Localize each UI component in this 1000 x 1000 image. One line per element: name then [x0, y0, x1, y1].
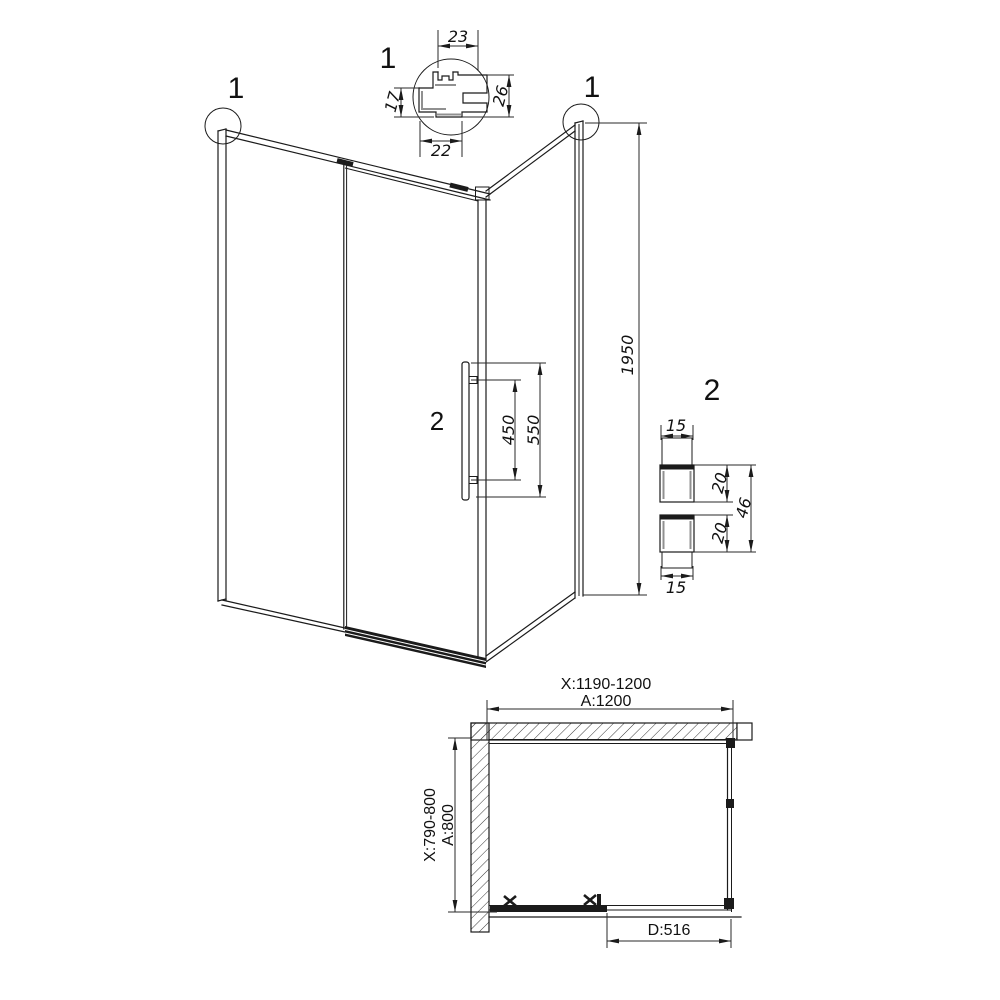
- handle-dimensions: 450 550: [471, 363, 546, 497]
- detail2-lower-depth-dim: 20: [708, 521, 732, 546]
- callout-label-right: 1: [584, 71, 601, 104]
- panel-clamp-bottom: [724, 898, 734, 909]
- handle-hole-spacing-dim: 450: [499, 415, 518, 446]
- callout-label-left: 1: [228, 72, 245, 105]
- corner-post: [476, 187, 490, 662]
- top-wall: [471, 723, 737, 740]
- plan-door-dimension: D:516: [607, 913, 731, 948]
- plan-door-opening: D:516: [648, 922, 691, 939]
- plan-depth-range: X:790-800: [422, 788, 439, 862]
- detail2-label: 2: [704, 374, 721, 407]
- plan-width: A:1200: [581, 693, 632, 710]
- profile-snap-slot: [438, 72, 453, 80]
- plan-view: X:1190-1200 A:1200 X:790-800 A:800 D:516: [422, 676, 752, 948]
- detail2-dimensions: 15 20 20 46 15: [661, 416, 756, 597]
- detail2-bottom-width-dim: 15: [666, 578, 686, 597]
- technical-drawing-page: 1 1: [0, 0, 1000, 1000]
- plan-depth: A:800: [440, 804, 457, 846]
- detail2-overall-dim: 46: [732, 496, 756, 521]
- height-dim: 1950: [618, 335, 637, 376]
- detail2-upper-depth-dim: 20: [708, 471, 732, 496]
- handle-length-dim: 550: [524, 415, 543, 446]
- left-wall-post: [218, 129, 226, 601]
- detail1-dimensions: 23 17 26 22: [381, 27, 514, 160]
- plan-sliding-door: [490, 894, 607, 912]
- detail-2-handle-profile: 2 15 20 20 46: [660, 374, 756, 597]
- right-wall-post: [575, 121, 583, 598]
- bottom-track: [345, 626, 486, 668]
- bottom-frame: [222, 600, 486, 668]
- left-wall: [471, 723, 489, 932]
- panel-clamp-top: [726, 738, 735, 748]
- panel-clamp-mid: [726, 799, 734, 808]
- shower-enclosure-drawing: 1 1: [0, 0, 1000, 1000]
- detail1-top-width-dim: 23: [448, 27, 468, 46]
- side-panel-edges: [486, 125, 575, 662]
- detail2-top-width-dim: 15: [666, 416, 686, 435]
- plan-enclosure: [489, 738, 741, 917]
- height-dimension: 1950: [583, 123, 647, 595]
- door-roller: [504, 896, 516, 906]
- handle-callout-label: 2: [430, 406, 444, 436]
- door-hanger-bracket: [450, 185, 468, 190]
- handle-profile-section: [660, 438, 694, 568]
- wall-profile-section: [419, 72, 487, 117]
- main-3d-view: 1 1: [205, 71, 647, 668]
- door-stopper: [597, 894, 601, 905]
- door-handle: [462, 362, 477, 500]
- top-wall-end: [737, 723, 752, 740]
- detail1-label: 1: [380, 42, 397, 75]
- plan-width-range: X:1190-1200: [561, 676, 652, 693]
- detail1-bottom-width-dim: 22: [431, 141, 451, 160]
- detail-1-wall-profile: 1 23 17 26 22: [380, 27, 514, 160]
- fixed-panel-divider: [344, 164, 347, 630]
- door-roller: [584, 895, 596, 905]
- plan-walls: [471, 723, 752, 932]
